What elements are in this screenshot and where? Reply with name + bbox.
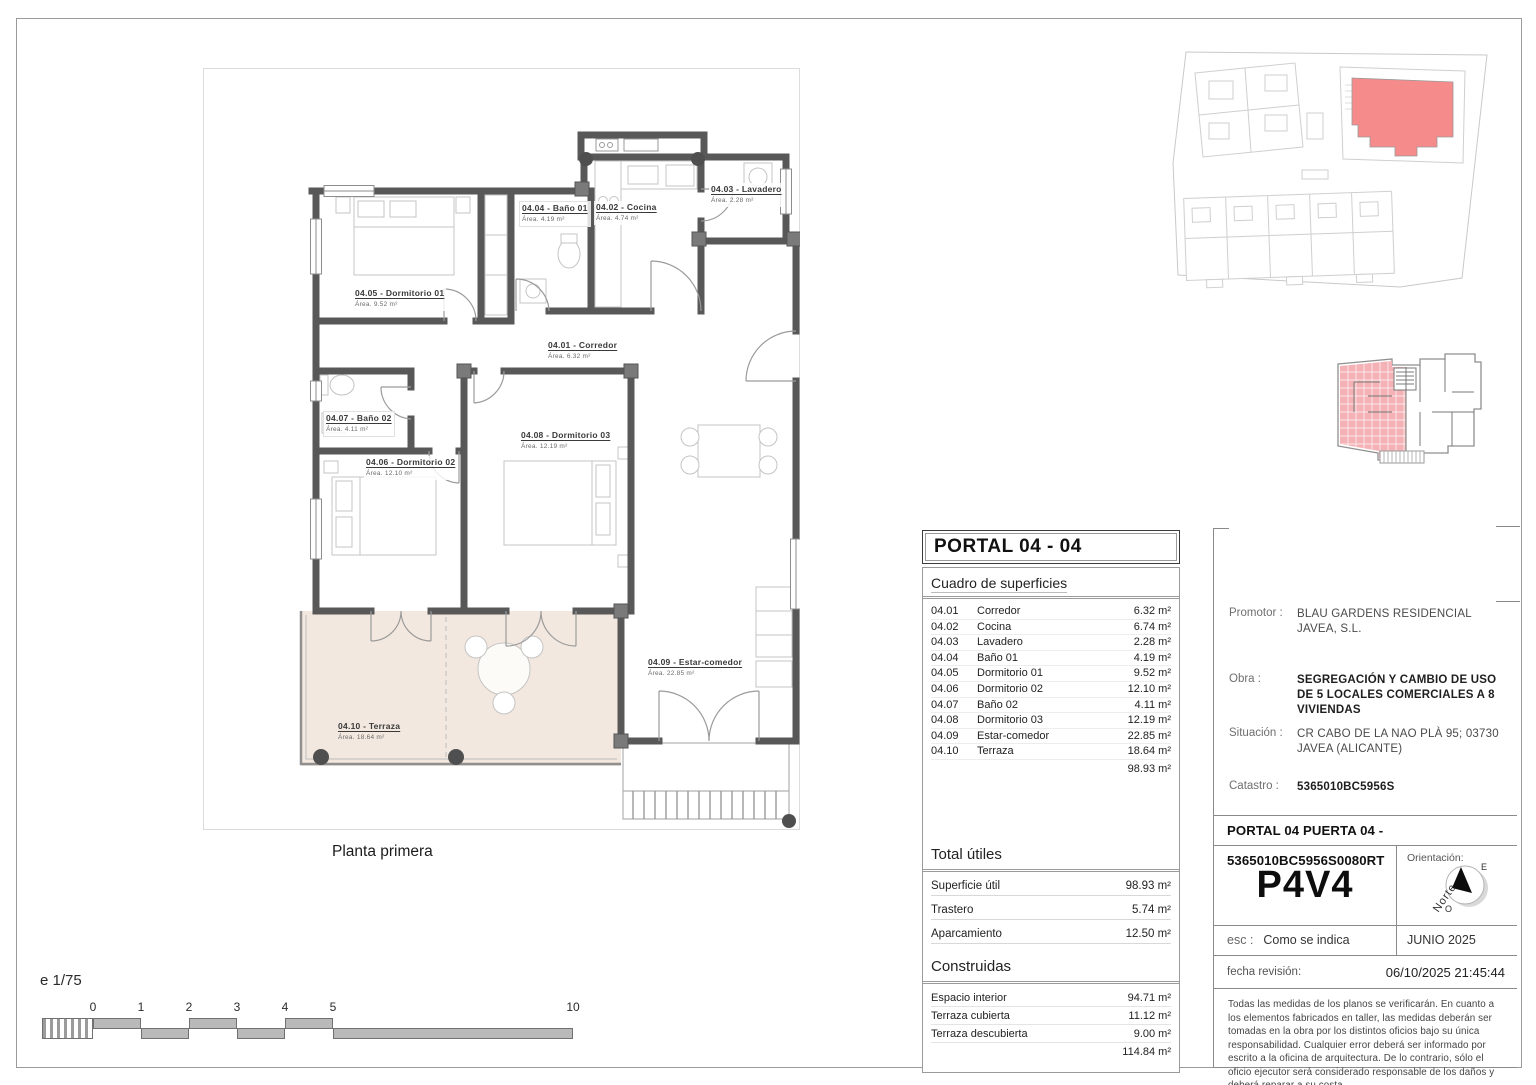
table-title-box: PORTAL 04 - 04 (922, 530, 1180, 564)
room-area: Área. 4.74 m² (596, 214, 657, 224)
unit-code: P4V4 (1257, 864, 1354, 907)
disclaimer-box: Todas las medidas de los planos se verif… (1214, 988, 1517, 1067)
porch-railing-hatch (633, 791, 776, 819)
portal-reference: PORTAL 04 PUERTA 04 - 5365010BC5956S0080… (1214, 815, 1517, 846)
unit-row: P4V4 Orientación: Norte E O (1214, 846, 1517, 925)
compass-icon: Norte E O (1419, 854, 1511, 920)
scale-tick: 10 (566, 1000, 579, 1014)
table-row: 04.03Lavadero2.28 m² (931, 635, 1171, 651)
scale-row: esc :Como se indica JUNIO 2025 (1214, 925, 1517, 955)
room-name: 04.06 - Dormitorio 02 (366, 457, 455, 467)
room-label-lavadero: 04.03 - Lavadero Área. 2.28 m² (709, 183, 784, 207)
room-rows: 04.01Corredor6.32 m² 04.02Cocina6.74 m² … (923, 599, 1179, 760)
table-row: Terraza cubierta11.12 m² (931, 1007, 1171, 1025)
construidas-total: 114.84 m² (923, 1043, 1179, 1072)
room-area: Área. 22.85 m² (648, 669, 742, 679)
site-small-structures (1302, 113, 1328, 179)
situacion-value: CR CABO DE LA NAO PLÀ 95; 03730 JAVEA (A… (1297, 727, 1507, 757)
table-row: 04.01Corredor6.32 m² (931, 604, 1171, 620)
promotor-label: Promotor : (1229, 607, 1297, 619)
room-area: Área. 9.52 m² (355, 300, 444, 310)
room-name: 04.05 - Dormitorio 01 (355, 288, 444, 298)
obra-row: Obra :SEGREGACIÓN Y CAMBIO DE USO DE 5 L… (1229, 673, 1507, 718)
compass-west-label: O (1445, 904, 1452, 914)
situacion-row: Situación :CR CABO DE LA NAO PLÀ 95; 037… (1229, 727, 1507, 757)
revision-value: 06/10/2025 21:45:44 (1386, 965, 1505, 980)
scale-note: e 1/75 (40, 972, 82, 989)
registration-tick (1496, 526, 1520, 527)
table-row: Espacio interior94.71 m² (931, 989, 1171, 1007)
room-name: 04.08 - Dormitorio 03 (521, 430, 610, 440)
compass-east-label: E (1481, 862, 1487, 872)
revision-label: fecha revisión: (1227, 966, 1301, 978)
room-area: Área. 12.10 m² (366, 469, 455, 479)
porch (623, 743, 789, 819)
table-row: 04.02Cocina6.74 m² (931, 620, 1171, 636)
room-label-estar-comedor: 04.09 - Estar-comedor Área. 22.85 m² (646, 656, 744, 680)
orientation-cell: Orientación: Norte E O (1396, 846, 1517, 925)
scale-bar: e 1/75 0 1 2 3 4 5 10 (38, 972, 618, 1050)
utiles-heading: Total útiles (923, 839, 1179, 869)
scale-tick: 1 (138, 1000, 145, 1014)
room-area: Área. 18.64 m² (338, 733, 400, 743)
table-row: 04.05Dormitorio 019.52 m² (931, 666, 1171, 682)
room-name: 04.09 - Estar-comedor (648, 657, 742, 667)
catastro-label: Catastro : (1229, 780, 1297, 792)
room-name: 04.02 - Cocina (596, 202, 657, 212)
scale-tick: 5 (330, 1000, 337, 1014)
room-label-terraza: 04.10 - Terraza Área. 18.64 m² (336, 720, 402, 744)
scale-cell: esc :Como se indica (1214, 926, 1396, 955)
table-row: Terraza descubierta9.00 m² (931, 1025, 1171, 1043)
scale-segment (237, 1028, 285, 1039)
scale-label: esc : (1227, 933, 1253, 947)
construidas-heading: Construidas (923, 944, 1179, 981)
date-cell: JUNIO 2025 (1396, 926, 1517, 955)
room-label-dormitorio01: 04.05 - Dormitorio 01 Área. 9.52 m² (353, 287, 446, 311)
obra-label: Obra : (1229, 673, 1297, 685)
table-row: 04.06Dormitorio 0212.10 m² (931, 682, 1171, 698)
promotor-row: Promotor :BLAU GARDENS RESIDENCIAL JAVEA… (1229, 607, 1507, 637)
site-building-west (1195, 63, 1303, 157)
keyplan-terrace (1380, 451, 1424, 463)
title-block: Promotor :BLAU GARDENS RESIDENCIAL JAVEA… (1213, 528, 1517, 1068)
room-name: 04.01 - Corredor (548, 340, 617, 350)
table-row: 04.07Baño 024.11 m² (931, 698, 1171, 714)
room-label-dormitorio03: 04.08 - Dormitorio 03 Área. 12.19 m² (519, 429, 612, 453)
table-row: 04.04Baño 014.19 m² (931, 651, 1171, 667)
promotor-value: BLAU GARDENS RESIDENCIAL JAVEA, S.L. (1297, 607, 1507, 637)
surfaces-table: PORTAL 04 - 04 Cuadro de superficies 04.… (922, 530, 1180, 1073)
room-area: Área. 6.32 m² (548, 352, 617, 362)
room-name: 04.07 - Baño 02 (326, 413, 392, 423)
room-name: 04.10 - Terraza (338, 721, 400, 731)
room-name: 04.04 - Baño 01 (522, 203, 588, 213)
scale-tick: 2 (186, 1000, 193, 1014)
table-row: Trastero5.74 m² (931, 896, 1171, 920)
scale-segment (333, 1028, 573, 1039)
rooms-total: 98.93 m² (923, 760, 1179, 783)
table-row: 04.09Estar-comedor22.85 m² (931, 729, 1171, 745)
site-plan-svg (1165, 25, 1515, 337)
table-row: Aparcamiento12.50 m² (931, 920, 1171, 944)
table-row: 04.08Dormitorio 0312.19 m² (931, 713, 1171, 729)
drawing-sheet: 04.01 - Corredor Área. 6.32 m² 04.02 - C… (0, 0, 1536, 1085)
room-label-corredor: 04.01 - Corredor Área. 6.32 m² (546, 339, 619, 363)
scale-segment (189, 1018, 237, 1029)
room-label-cocina: 04.02 - Cocina Área. 4.74 m² (594, 201, 659, 225)
room-area: Área. 12.19 m² (521, 442, 610, 452)
unit-code-cell: P4V4 (1214, 846, 1396, 925)
table-row: 04.10Terraza18.64 m² (931, 744, 1171, 760)
site-building-highlighted (1340, 67, 1465, 163)
catastro-row: Catastro :5365010BC5956S (1229, 780, 1507, 795)
table-subtitle: Cuadro de superficies (923, 568, 1179, 596)
room-area: Área. 2.28 m² (711, 196, 782, 206)
site-building-south (1184, 191, 1395, 288)
disclaimer-text: Todas las medidas de los planos se verif… (1228, 998, 1503, 1085)
table-body: Cuadro de superficies 04.01Corredor6.32 … (922, 567, 1180, 1073)
room-area: Área. 4.11 m² (326, 425, 392, 435)
floor-plan-viewport: 04.01 - Corredor Área. 6.32 m² 04.02 - C… (203, 68, 800, 830)
catastro-value: 5365010BC5956S (1297, 780, 1507, 795)
scale-segment (141, 1028, 189, 1039)
scale-segment (93, 1018, 141, 1029)
room-area: Área. 4.19 m² (522, 215, 588, 225)
situacion-label: Situación : (1229, 727, 1297, 739)
plan-caption: Planta primera (332, 843, 433, 861)
scale-hatch-block (42, 1018, 93, 1039)
revision-row: fecha revisión: 06/10/2025 21:45:44 (1214, 955, 1517, 988)
scale-tick: 3 (234, 1000, 241, 1014)
room-label-bano02: 04.07 - Baño 02 Área. 4.11 m² (323, 411, 395, 437)
obra-value: SEGREGACIÓN Y CAMBIO DE USO DE 5 LOCALES… (1297, 673, 1507, 718)
scale-tick: 4 (282, 1000, 289, 1014)
scale-tick: 0 (90, 1000, 97, 1014)
key-plan-svg (1332, 352, 1484, 467)
room-label-bano01: 04.04 - Baño 01 Área. 4.19 m² (519, 201, 591, 227)
room-name: 04.03 - Lavadero (711, 184, 782, 194)
table-title: PORTAL 04 - 04 (925, 533, 1177, 561)
scale-value: Como se indica (1263, 933, 1349, 947)
vent-detail (596, 139, 658, 151)
table-row: Superficie útil98.93 m² (931, 872, 1171, 896)
room-label-dormitorio02: 04.06 - Dormitorio 02 Área. 12.10 m² (364, 456, 457, 480)
scale-segment (285, 1018, 333, 1029)
